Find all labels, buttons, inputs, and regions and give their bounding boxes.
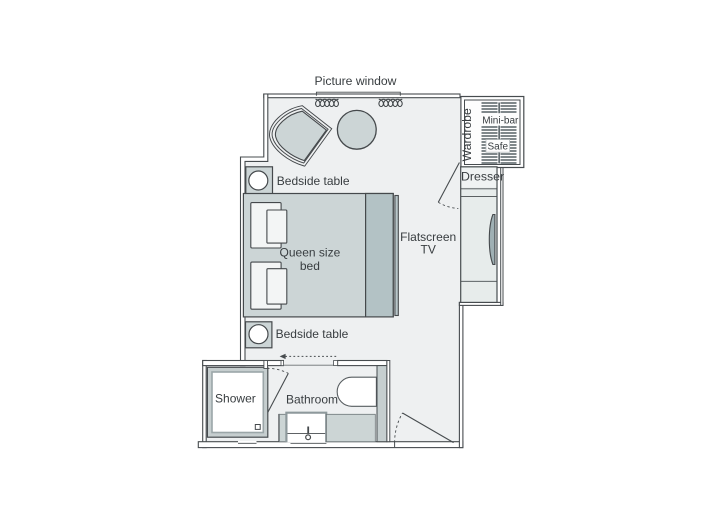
svg-text:Picture window: Picture window (315, 74, 397, 88)
svg-text:bed: bed (300, 259, 320, 273)
svg-text:Bedside table: Bedside table (276, 327, 349, 341)
svg-text:Shower: Shower (215, 392, 256, 406)
svg-text:Mini-bar: Mini-bar (482, 116, 519, 127)
svg-text:Wardrobe: Wardrobe (460, 108, 474, 161)
svg-text:Safe: Safe (488, 142, 509, 153)
svg-text:Bedside table: Bedside table (277, 174, 350, 188)
svg-text:TV: TV (421, 243, 436, 257)
svg-text:Dresser: Dresser (461, 170, 504, 184)
svg-text:Queen size: Queen size (280, 246, 341, 260)
svg-text:Bathroom: Bathroom (286, 392, 338, 406)
